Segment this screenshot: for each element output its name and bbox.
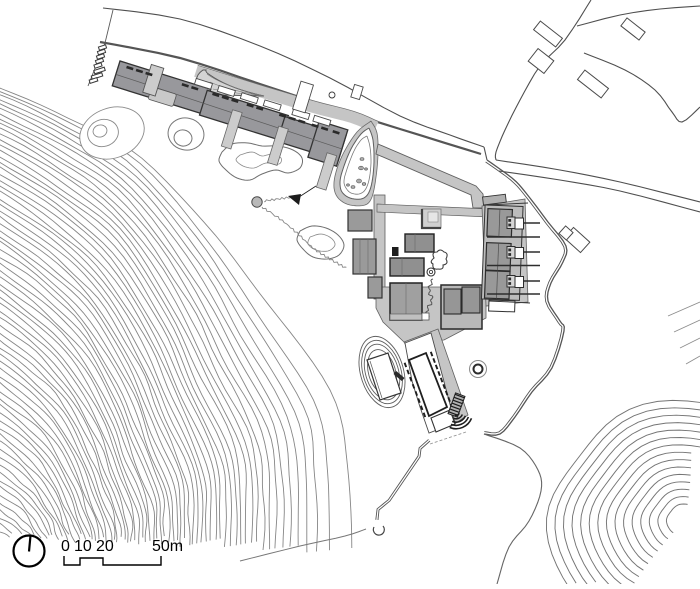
svg-text:50m: 50m xyxy=(152,538,183,555)
svg-text:20: 20 xyxy=(96,538,114,555)
svg-text:0: 0 xyxy=(61,538,70,555)
svg-text:10: 10 xyxy=(74,538,92,555)
